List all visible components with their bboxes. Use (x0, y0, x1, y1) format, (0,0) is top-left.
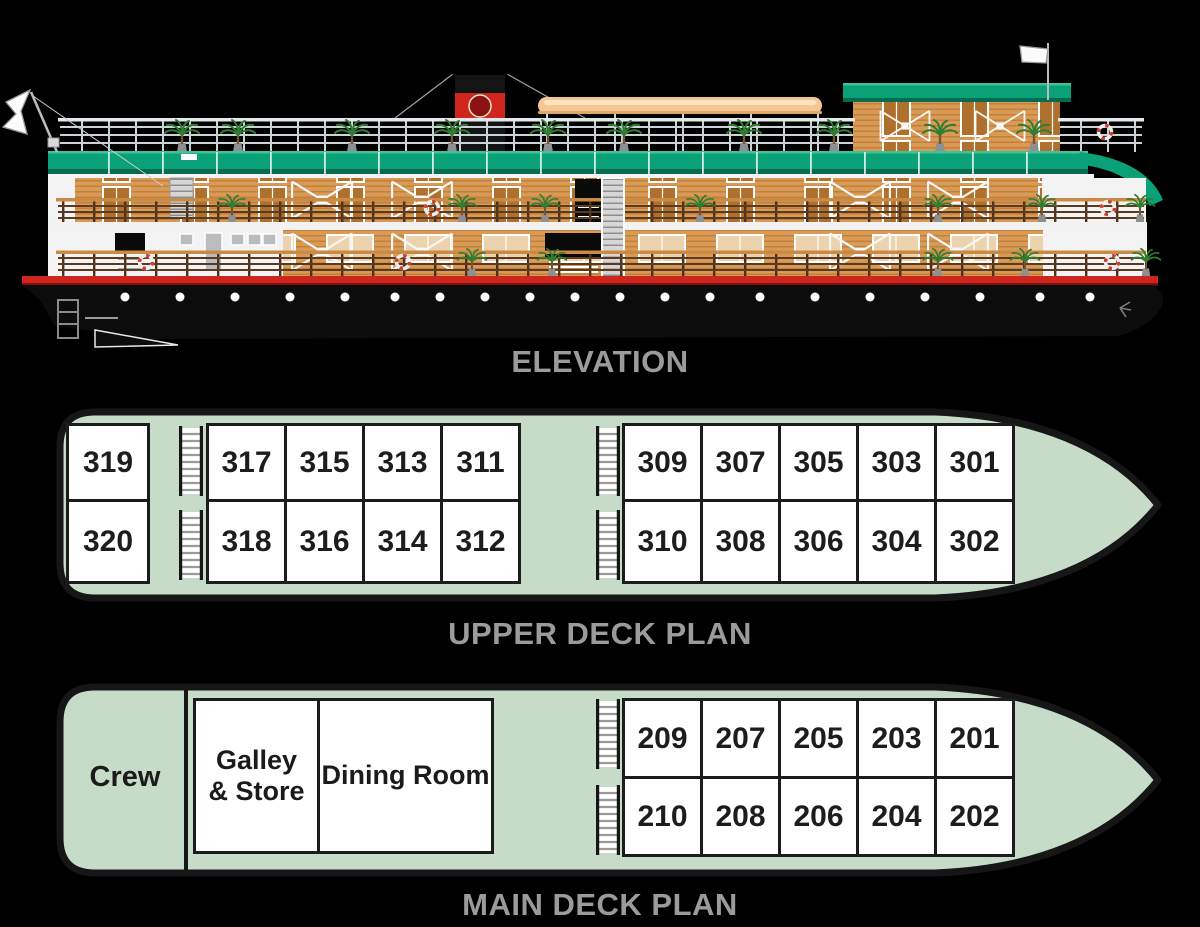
ship-elevation-illustration (0, 0, 1200, 350)
stern-top-cabin (843, 83, 1071, 152)
main-deck-plan: Crew Galley & Store Dining Room 20920720… (0, 680, 1200, 880)
main-fore-row-top: 209207205203201 (622, 698, 1012, 779)
cabin: 202 (934, 776, 1015, 857)
cabin: 203 (856, 698, 937, 779)
stairs-icon (596, 785, 620, 855)
upper-deck-plan-label: UPPER DECK PLAN (0, 616, 1200, 652)
cabin: 320 (66, 499, 150, 584)
stairs-icon (596, 510, 620, 580)
upper-deck-hull (0, 405, 1200, 605)
cabin: 303 (856, 423, 937, 502)
stairs-icon (179, 510, 203, 580)
cabin: 309 (622, 423, 703, 502)
cabin: 315 (284, 423, 365, 502)
cabin: 316 (284, 499, 365, 584)
main-deck-plan-label: MAIN DECK PLAN (0, 887, 1200, 923)
cabin: 209 (622, 698, 703, 779)
cabin: 317 (206, 423, 287, 502)
cabin: 310 (622, 499, 703, 584)
cabin: 311 (440, 423, 521, 502)
cabin: 210 (622, 776, 703, 857)
galley-store-room: Galley & Store (193, 698, 320, 854)
cabin: 307 (700, 423, 781, 502)
upper-fore-row-bottom: 310308306304302 (622, 499, 1012, 584)
upper-deck-plan: 319 320 317315313311 318316314312 309307… (0, 405, 1200, 605)
upper-mid-row-top: 317315313311 (206, 423, 518, 502)
ship-deck-plan-page: ELEVATION UPPER DECK PLAN MAIN DECK PLAN (0, 0, 1200, 927)
cabin: 201 (934, 698, 1015, 779)
cabin: 306 (778, 499, 859, 584)
cabin: 206 (778, 776, 859, 857)
cabin: 302 (934, 499, 1015, 584)
stairs-icon (179, 426, 203, 496)
deck-floor-band (48, 222, 1147, 230)
elevation-label: ELEVATION (0, 344, 1200, 380)
cabin: 314 (362, 499, 443, 584)
upper-aft-row-bottom: 320 (66, 499, 147, 584)
cabin: 204 (856, 776, 937, 857)
cabin: 318 (206, 499, 287, 584)
hull (22, 276, 1163, 347)
cabin: 305 (778, 423, 859, 502)
main-fore-row-bottom: 210208206204202 (622, 776, 1012, 857)
cabin: 207 (700, 698, 781, 779)
crew-area-label: Crew (62, 698, 188, 856)
stairs-icon (596, 426, 620, 496)
cabin: 312 (440, 499, 521, 584)
cabin: 319 (66, 423, 150, 502)
cabin: 304 (856, 499, 937, 584)
cabin: 208 (700, 776, 781, 857)
upper-aft-row-top: 319 (66, 423, 147, 502)
cabin: 205 (778, 698, 859, 779)
upper-mid-row-bottom: 318316314312 (206, 499, 518, 584)
cabin: 301 (934, 423, 1015, 502)
cabin: 313 (362, 423, 443, 502)
stairs-icon (596, 699, 620, 769)
dining-room: Dining Room (317, 698, 494, 854)
cabin: 308 (700, 499, 781, 584)
upper-fore-row-top: 309307305303301 (622, 423, 1012, 502)
